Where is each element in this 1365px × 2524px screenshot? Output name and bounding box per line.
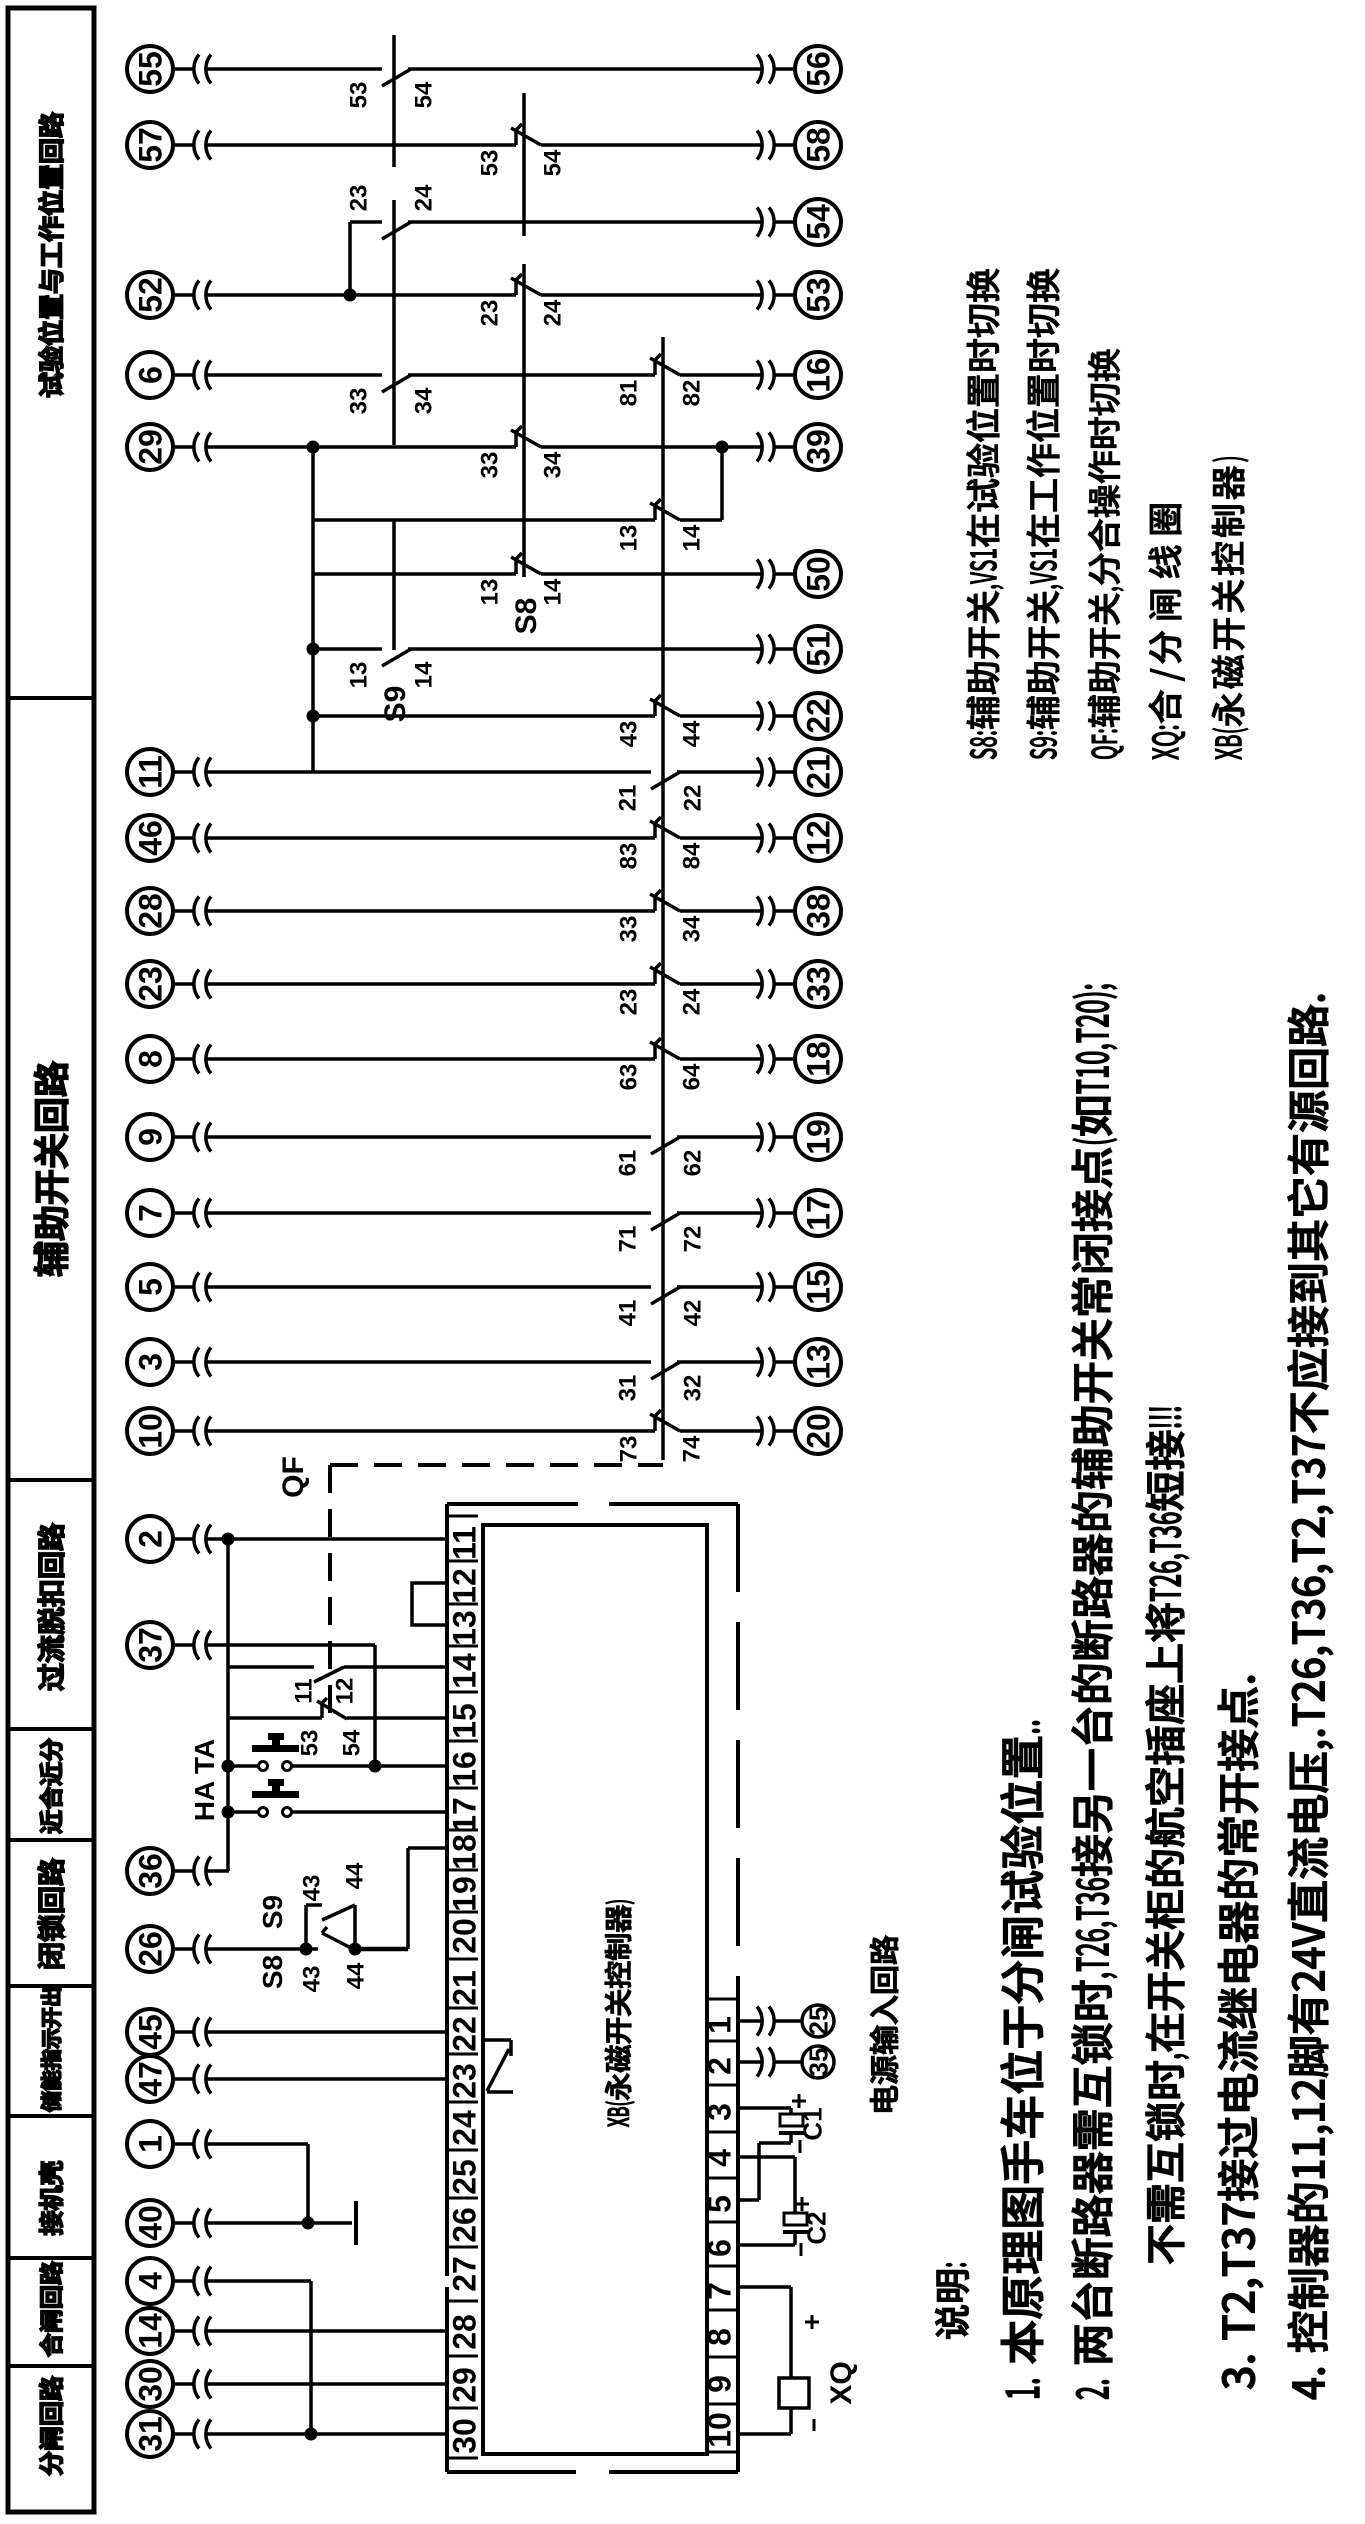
svg-text:37: 37 xyxy=(133,1627,169,1663)
svg-text:39: 39 xyxy=(801,429,837,465)
svg-text:13: 13 xyxy=(346,662,373,689)
svg-text:18: 18 xyxy=(447,1834,483,1870)
svg-text:42: 42 xyxy=(680,1300,707,1327)
svg-text:71: 71 xyxy=(615,1226,642,1253)
svg-text:34: 34 xyxy=(679,915,706,942)
svg-text:13: 13 xyxy=(477,579,504,606)
svg-text:6: 6 xyxy=(702,2239,738,2257)
svg-text:24: 24 xyxy=(447,2110,483,2146)
svg-text:40: 40 xyxy=(133,2205,169,2241)
svg-text:31: 31 xyxy=(133,2416,169,2452)
svg-text:17: 17 xyxy=(801,1195,837,1231)
svg-text:44: 44 xyxy=(342,1862,369,1889)
svg-text:33: 33 xyxy=(477,452,504,479)
svg-text:S8: S8 xyxy=(510,598,543,635)
svg-text:8: 8 xyxy=(133,1050,169,1068)
svg-text:21: 21 xyxy=(801,754,837,790)
svg-text:54: 54 xyxy=(339,1729,366,1756)
svg-text:12: 12 xyxy=(447,1568,483,1604)
svg-text:24: 24 xyxy=(540,299,567,326)
svg-text:72: 72 xyxy=(680,1226,707,1253)
svg-text:5: 5 xyxy=(133,1278,169,1296)
svg-text:22: 22 xyxy=(801,698,837,734)
svg-text:63: 63 xyxy=(616,1064,643,1091)
svg-text:XQ: XQ xyxy=(825,2361,858,2404)
svg-text:1: 1 xyxy=(702,2016,738,2034)
svg-text:23: 23 xyxy=(616,989,643,1016)
svg-text:33: 33 xyxy=(616,916,643,943)
svg-text:8: 8 xyxy=(702,2328,738,2346)
svg-text:22: 22 xyxy=(680,785,707,812)
svg-text:30: 30 xyxy=(133,2366,169,2402)
svg-text:34: 34 xyxy=(540,451,567,478)
svg-text:29: 29 xyxy=(447,2367,483,2403)
svg-text:31: 31 xyxy=(615,1375,642,1402)
svg-text:4: 4 xyxy=(702,2149,738,2167)
svg-text:35: 35 xyxy=(803,2048,833,2077)
svg-text:44: 44 xyxy=(343,1962,370,1989)
svg-text:10: 10 xyxy=(133,1413,169,1449)
svg-text:54: 54 xyxy=(801,204,837,240)
svg-text:30: 30 xyxy=(447,2418,483,2454)
svg-text:24: 24 xyxy=(679,988,706,1015)
svg-text:44: 44 xyxy=(679,720,706,747)
svg-text:26: 26 xyxy=(447,2207,483,2243)
svg-text:19: 19 xyxy=(447,1876,483,1912)
svg-text:21: 21 xyxy=(447,1970,483,2006)
svg-text:56: 56 xyxy=(801,51,837,87)
svg-text:43: 43 xyxy=(616,721,643,748)
svg-text:33: 33 xyxy=(346,388,373,415)
svg-text:7: 7 xyxy=(133,1204,169,1222)
svg-text:C2: C2 xyxy=(801,2211,831,2244)
svg-text:74: 74 xyxy=(679,1435,706,1462)
svg-text:50: 50 xyxy=(801,556,837,592)
svg-text:17: 17 xyxy=(447,1797,483,1833)
svg-text:36: 36 xyxy=(133,1853,169,1889)
svg-text:51: 51 xyxy=(801,631,837,667)
svg-text:6: 6 xyxy=(133,366,169,384)
svg-text:16: 16 xyxy=(447,1751,483,1787)
svg-text:12: 12 xyxy=(332,1678,359,1705)
svg-text:54: 54 xyxy=(411,81,438,108)
svg-text:54: 54 xyxy=(540,149,567,176)
svg-text:S8: S8 xyxy=(257,1955,288,1989)
svg-text:23: 23 xyxy=(346,185,373,212)
svg-text:55: 55 xyxy=(133,51,169,87)
svg-text:53: 53 xyxy=(477,150,504,177)
svg-text:HA TA: HA TA xyxy=(189,1739,220,1821)
svg-text:15: 15 xyxy=(801,1269,837,1305)
svg-text:3: 3 xyxy=(702,2103,738,2121)
svg-text:13: 13 xyxy=(801,1344,837,1380)
svg-text:28: 28 xyxy=(447,2314,483,2350)
svg-text:10: 10 xyxy=(702,2412,738,2448)
svg-text:62: 62 xyxy=(680,1150,707,1177)
svg-text:23: 23 xyxy=(477,300,504,327)
svg-text:9: 9 xyxy=(133,1128,169,1146)
svg-text:16: 16 xyxy=(801,357,837,393)
svg-text:73: 73 xyxy=(616,1436,643,1463)
svg-text:33: 33 xyxy=(801,966,837,1002)
svg-text:15: 15 xyxy=(447,1703,483,1739)
svg-text:27: 27 xyxy=(447,2256,483,2292)
svg-text:84: 84 xyxy=(679,842,706,869)
svg-text:43: 43 xyxy=(299,1875,326,1902)
svg-text:9: 9 xyxy=(702,2375,738,2393)
svg-text:13: 13 xyxy=(447,1610,483,1646)
svg-text:57: 57 xyxy=(133,127,169,163)
svg-text:11: 11 xyxy=(447,1526,483,1560)
svg-text:13: 13 xyxy=(616,525,643,552)
svg-text:14: 14 xyxy=(540,578,567,605)
svg-text:11: 11 xyxy=(291,1678,318,1703)
svg-text:29: 29 xyxy=(133,429,169,465)
svg-text:12: 12 xyxy=(801,820,837,856)
svg-text:C1: C1 xyxy=(797,2107,827,2140)
svg-text:34: 34 xyxy=(411,387,438,414)
svg-text:11: 11 xyxy=(133,755,169,789)
svg-text:26: 26 xyxy=(133,1931,169,1967)
svg-text:3: 3 xyxy=(133,1353,169,1371)
svg-text:2: 2 xyxy=(702,2057,738,2075)
svg-text:2: 2 xyxy=(133,1530,169,1548)
svg-text:25: 25 xyxy=(447,2159,483,2195)
svg-text:20: 20 xyxy=(801,1413,837,1449)
svg-text:83: 83 xyxy=(616,843,643,870)
svg-text:24: 24 xyxy=(411,184,438,211)
svg-text:53: 53 xyxy=(346,82,373,109)
svg-text:14: 14 xyxy=(679,524,706,551)
svg-text:28: 28 xyxy=(133,893,169,929)
svg-text:22: 22 xyxy=(447,2016,483,2052)
svg-text:14: 14 xyxy=(447,1653,483,1689)
svg-text:23: 23 xyxy=(133,966,169,1002)
svg-text:46: 46 xyxy=(133,820,169,856)
svg-text:7: 7 xyxy=(702,2282,738,2300)
svg-text:32: 32 xyxy=(680,1375,707,1402)
svg-text:64: 64 xyxy=(679,1063,706,1090)
svg-text:53: 53 xyxy=(297,1730,324,1757)
svg-text:18: 18 xyxy=(801,1041,837,1077)
svg-text:47: 47 xyxy=(133,2061,169,2097)
svg-text:14: 14 xyxy=(133,2313,169,2349)
svg-text:82: 82 xyxy=(679,380,706,407)
svg-text:QF: QF xyxy=(277,1456,310,1498)
svg-text:61: 61 xyxy=(615,1150,642,1177)
svg-text:58: 58 xyxy=(801,127,837,163)
svg-text:23: 23 xyxy=(447,2063,483,2099)
svg-text:52: 52 xyxy=(133,277,169,313)
svg-text:4: 4 xyxy=(133,2272,169,2290)
svg-text:41: 41 xyxy=(615,1300,642,1327)
svg-text:5: 5 xyxy=(702,2195,738,2213)
svg-text:43: 43 xyxy=(299,1966,326,1993)
svg-text:21: 21 xyxy=(615,785,642,812)
svg-text:38: 38 xyxy=(801,893,837,929)
svg-text:45: 45 xyxy=(133,2014,169,2050)
svg-text:25: 25 xyxy=(803,2007,833,2036)
svg-text:19: 19 xyxy=(801,1119,837,1155)
svg-text:81: 81 xyxy=(616,380,643,407)
svg-text:S9: S9 xyxy=(257,1895,288,1929)
svg-text:1: 1 xyxy=(133,2135,169,2153)
svg-text:20: 20 xyxy=(447,1918,483,1954)
svg-text:14: 14 xyxy=(411,661,438,688)
svg-text:53: 53 xyxy=(801,277,837,313)
